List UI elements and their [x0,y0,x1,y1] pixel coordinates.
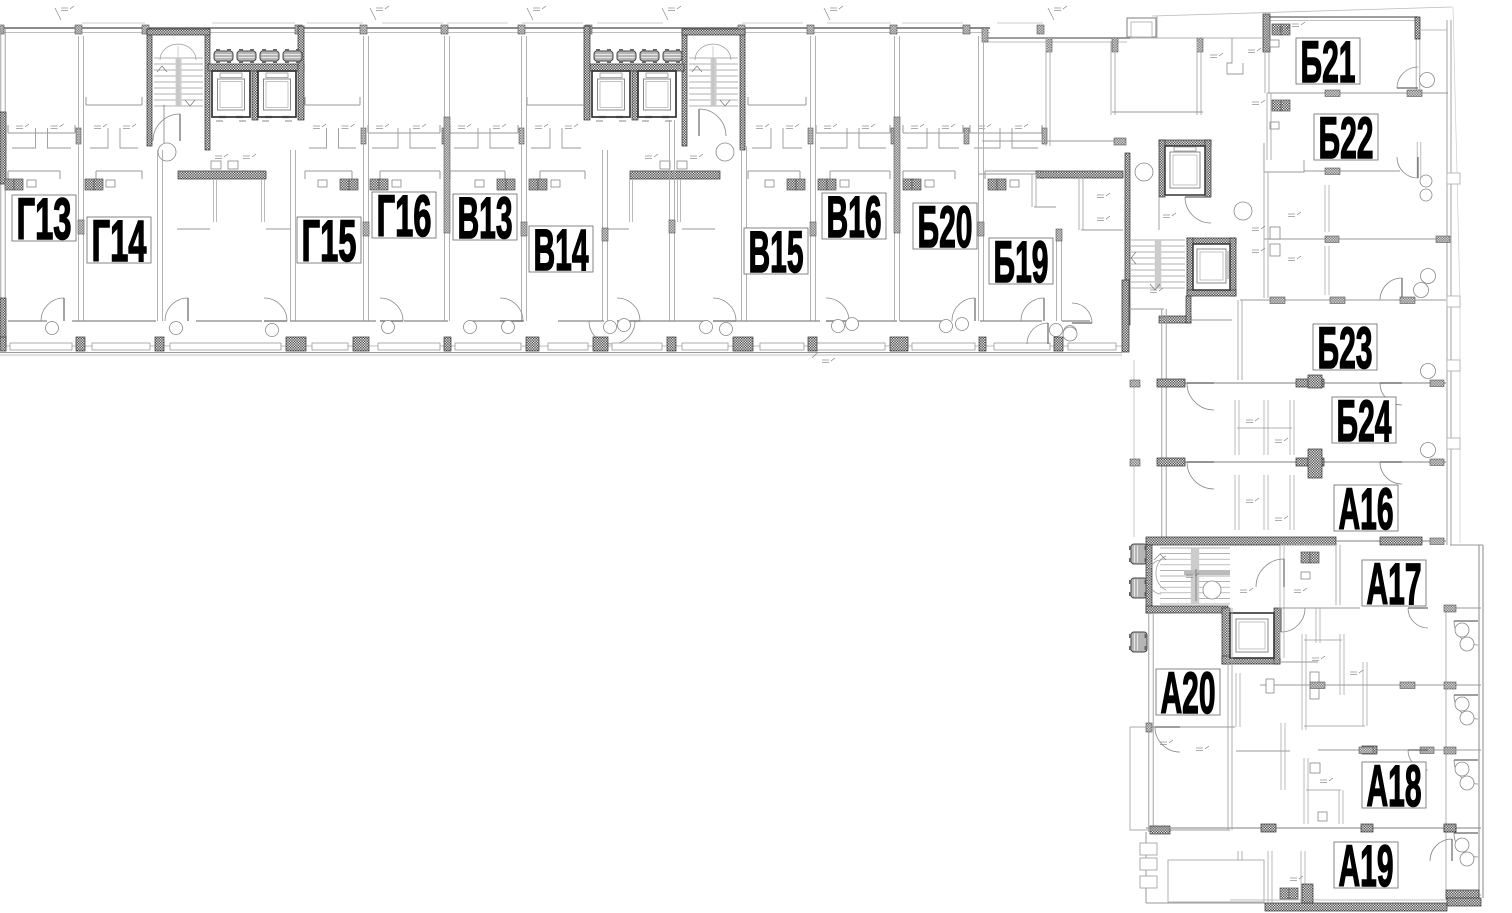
svg-text:Б24: Б24 [1337,389,1392,454]
svg-text:Г15: Г15 [302,209,357,274]
svg-text:Б23: Б23 [1318,316,1373,381]
svg-text:В14: В14 [534,218,589,283]
svg-text:Г14: Г14 [92,209,147,274]
svg-text:А16: А16 [1339,477,1394,542]
svg-text:Г16: Г16 [377,184,432,249]
svg-text:Б20: Б20 [918,195,973,260]
svg-text:Г13: Г13 [17,187,72,252]
svg-text:А17: А17 [1367,552,1422,617]
svg-text:А20: А20 [1161,661,1216,726]
svg-text:Б22: Б22 [1319,106,1374,171]
svg-text:Б21: Б21 [1301,30,1356,95]
svg-text:А19: А19 [1339,834,1394,899]
svg-text:Б19: Б19 [994,230,1049,295]
svg-text:В16: В16 [827,185,882,250]
svg-text:В13: В13 [458,186,513,251]
svg-text:В15: В15 [749,220,804,285]
svg-text:А18: А18 [1367,754,1422,819]
